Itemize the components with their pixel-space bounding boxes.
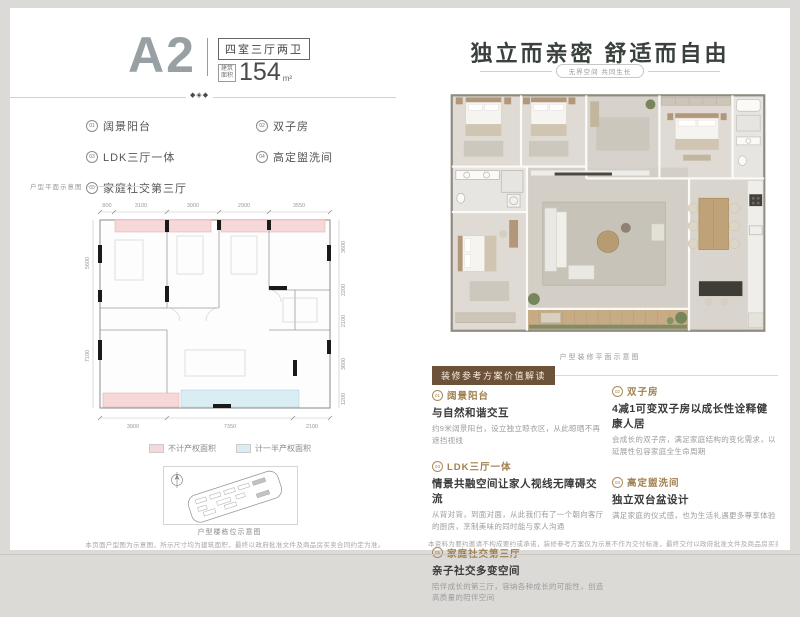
header-divider <box>207 38 208 76</box>
area-label-bottom: 面积 <box>221 73 233 80</box>
dimension-label: 2100 <box>306 424 318 430</box>
dimension-label: 2900 <box>238 203 250 209</box>
value-item: 04 高定盥洗间 独立双台盆设计 满足家庭的仪式感，也为生活礼遇更多尊享体验 <box>612 475 778 522</box>
value-item-body: 从背对背，到面对面，从此我们有了一个朝向客厅的厨房，烹制美味的同时能与家人沟通 <box>432 509 604 532</box>
dimension-label: 3550 <box>293 203 305 209</box>
siteplan-caption: 户型楼栋位示意图 <box>163 527 296 537</box>
legend-item: 不计产权面积 <box>149 443 216 454</box>
floorplan-drawing: 800 3100 3000 2900 3550 5600 7100 3600 2… <box>55 190 365 442</box>
bottom-dimension-labels: 3900 7350 2100 <box>127 424 318 430</box>
disclaimer-right: 本资料为要约邀请不构成要约或承诺，装修参考方案仅为示意不作为交付标准，最终交付以… <box>428 538 778 548</box>
area-label-top: 建筑 <box>221 66 233 73</box>
value-item-subtitle: 情景共融空间让家人视线无障碍交流 <box>432 476 604 506</box>
value-item-title: 双子房 <box>627 384 659 398</box>
value-number-icon: 01 <box>432 390 443 401</box>
feature-list-right: 02 双子房 04 高定盥洗间 <box>256 118 333 180</box>
area-value: 154 <box>239 60 281 85</box>
value-column-right: 02 双子房 4减1可变双子房以成长性诠释健康人居 会成长的双子房，满足家庭结构… <box>612 384 778 535</box>
compass-icon <box>172 472 183 488</box>
legend-label: 计一半产权面积 <box>255 443 311 454</box>
value-column-left: 01 阔景阳台 与自然和谐交互 约9米阔景阳台，设立独立晾衣区，从此晾晒不再遮挡… <box>432 388 604 617</box>
value-item: 01 阔景阳台 与自然和谐交互 约9米阔景阳台，设立独立晾衣区，从此晾晒不再遮挡… <box>432 388 604 446</box>
feature-label: 阔景阳台 <box>103 118 151 134</box>
dimension-label: 800 <box>102 203 111 209</box>
area-unit: m² <box>283 74 292 83</box>
value-number-icon: 03 <box>432 461 443 472</box>
value-item-subtitle: 独立双台盆设计 <box>612 492 778 507</box>
feature-label: 双子房 <box>273 118 309 134</box>
dimension-label: 2100 <box>341 315 347 327</box>
dimension-label: 3600 <box>341 241 347 253</box>
footer-rule <box>0 554 800 555</box>
dimension-label: 7100 <box>85 350 91 362</box>
value-item-subtitle: 与自然和谐交互 <box>432 405 604 420</box>
dimension-label: 3100 <box>135 203 147 209</box>
value-item: 02 双子房 4减1可变双子房以成长性诠释健康人居 会成长的双子房，满足家庭结构… <box>612 384 778 457</box>
feature-label: 高定盥洗间 <box>273 149 333 165</box>
value-item: 03 LDK三厅一体 情景共融空间让家人视线无障碍交流 从背对背，到面对面，从此… <box>432 459 604 532</box>
unit-layout-label: 四室三厅两卫 <box>218 38 310 60</box>
right-dimension-labels: 3600 2200 2100 3600 1200 <box>341 241 347 405</box>
value-number-icon: 02 <box>612 386 623 397</box>
dimension-label: 3900 <box>127 424 139 430</box>
legend-swatch-pink <box>149 444 164 453</box>
value-section-badge: 装修参考方案价值解读 <box>432 366 555 385</box>
dimension-label: 1200 <box>341 393 347 405</box>
dimension-label: 7350 <box>224 424 236 430</box>
top-dimension-labels: 800 3100 3000 2900 3550 <box>102 203 305 209</box>
value-item-title: 高定盥洗间 <box>627 475 680 489</box>
feature-item: 02 双子房 <box>256 118 333 134</box>
headline-subtitle: 无界空间 共同生长 <box>556 64 645 78</box>
feature-item: 03 LDK三厅一体 <box>86 149 187 165</box>
area-row: 建筑 面积 154 m² <box>218 60 292 85</box>
legend-item: 计一半产权面积 <box>236 443 311 454</box>
feature-number-icon: 03 <box>86 151 98 163</box>
legend-label: 不计产权面积 <box>168 443 216 454</box>
unit-code: A2 <box>128 26 196 84</box>
feature-number-icon: 02 <box>256 120 268 132</box>
value-item-subtitle: 亲子社交多变空间 <box>432 563 604 578</box>
floorplan-legend: 不计产权面积 计一半产权面积 <box>90 443 370 454</box>
value-item-body: 满足家庭的仪式感，也为生活礼遇更多尊享体验 <box>612 510 778 522</box>
feature-number-icon: 01 <box>86 120 98 132</box>
value-item-title: LDK三厅一体 <box>447 459 512 473</box>
dimension-label: 5600 <box>85 257 91 269</box>
disclaimer-left: 本页面户型图为示意图，所示尺寸均为建筑面积，最终以政府批准文件及商品房买卖合同约… <box>70 539 400 549</box>
feature-label: LDK三厅一体 <box>103 149 175 165</box>
building-footprint <box>186 469 284 524</box>
value-number-icon: 05 <box>432 547 443 558</box>
feature-number-icon: 04 <box>256 151 268 163</box>
siteplan-box <box>163 466 298 525</box>
value-item-subtitle: 4减1可变双子房以成长性诠释健康人居 <box>612 401 778 431</box>
feature-item: 01 阔景阳台 <box>86 118 187 134</box>
value-item-body: 会成长的双子房，满足家庭结构的变化需求，以延展性包容家庭全生命周期 <box>612 434 778 457</box>
value-item-body: 陪伴成长的第三厅，容纳各种成长的可能性，创造高质量的陪伴空间 <box>432 581 604 604</box>
left-dimension-labels: 5600 7100 <box>85 257 91 362</box>
siteplan-drawing <box>164 467 297 524</box>
dimension-label: 3000 <box>187 203 199 209</box>
feature-item: 04 高定盥洗间 <box>256 149 333 165</box>
dimension-label: 2200 <box>341 284 347 296</box>
value-section-header: 装修参考方案价值解读 <box>432 366 778 385</box>
diamond-ornament-icon: ◆◈◆ <box>186 91 213 99</box>
legend-swatch-blue <box>236 444 251 453</box>
headline-subtitle-row: 无界空间 共同生长 <box>430 64 770 78</box>
area-label: 建筑 面积 <box>218 64 236 82</box>
render-plan-caption: 户型装修平面示意图 <box>430 352 770 362</box>
value-item-body: 约9米阔景阳台，设立独立晾衣区，从此晾晒不再遮挡视线 <box>432 423 604 446</box>
dimension-label: 3600 <box>341 358 347 370</box>
value-item-title: 阔景阳台 <box>447 388 489 402</box>
value-number-icon: 04 <box>612 477 623 488</box>
render-plan-drawing <box>440 86 776 346</box>
